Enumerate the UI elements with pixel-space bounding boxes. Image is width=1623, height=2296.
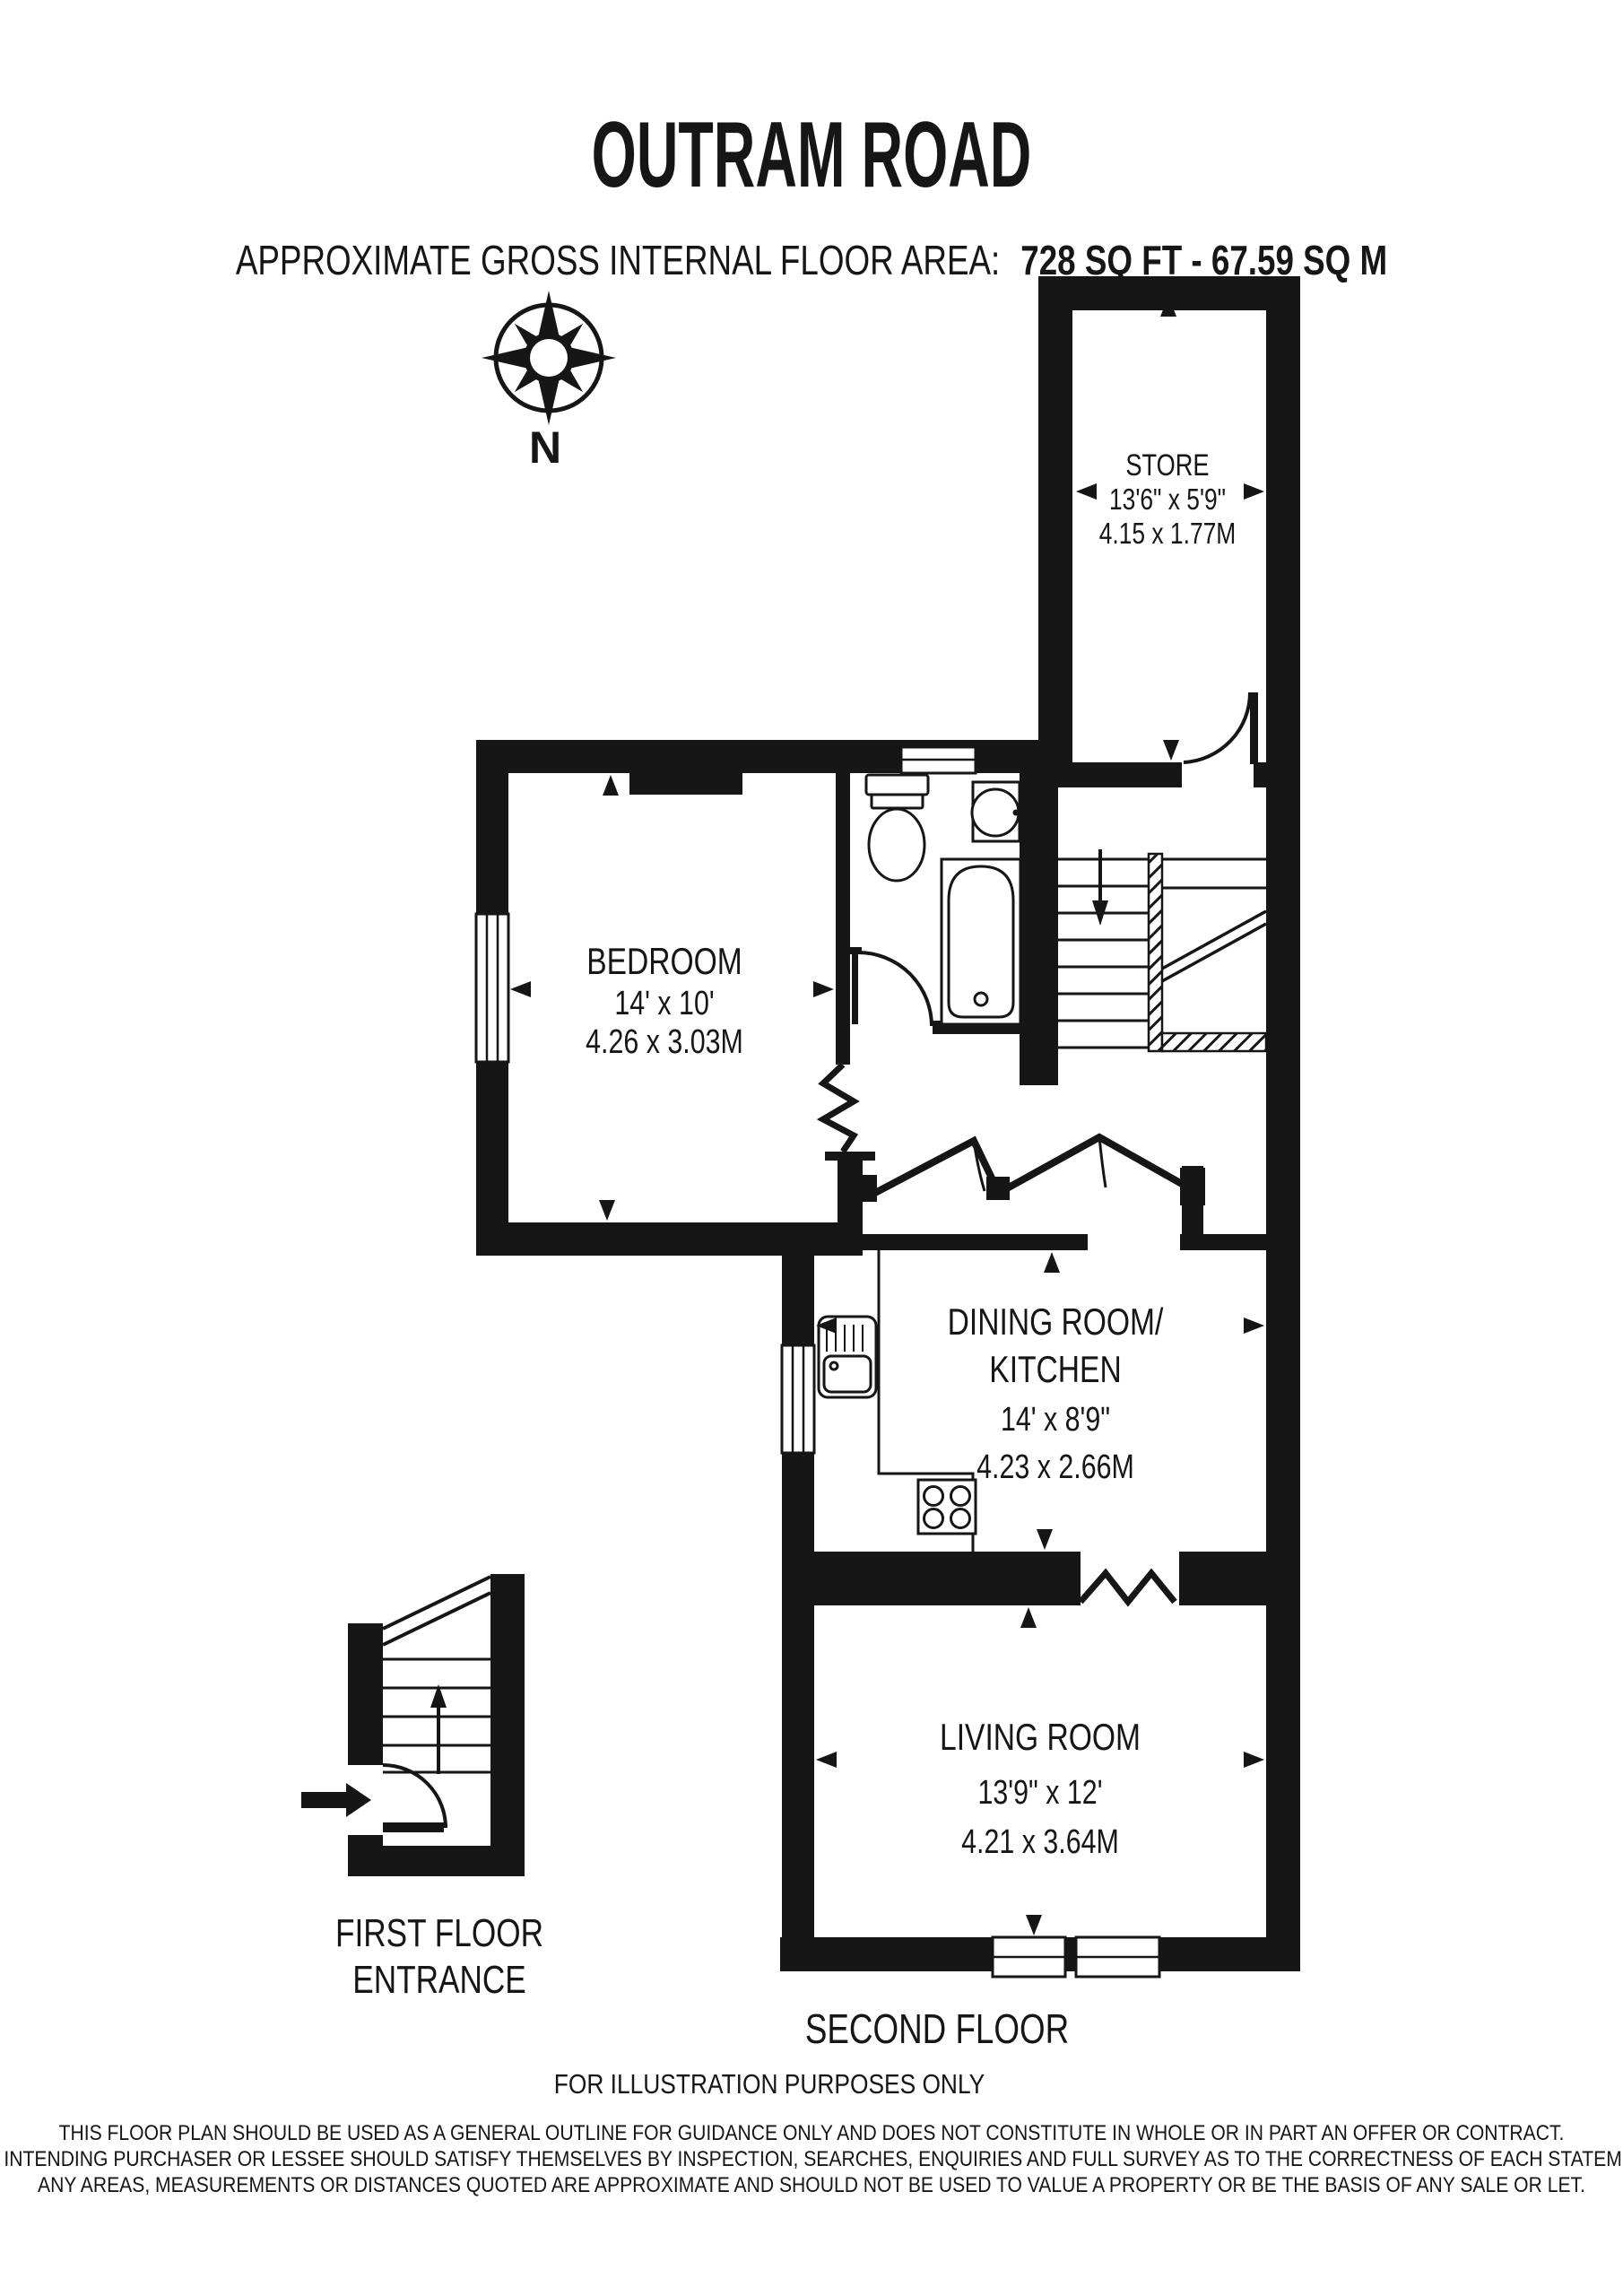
bedroom-opening-zigzag bbox=[823, 1065, 854, 1152]
bedroom-label: BEDROOM 14' x 10' 4.26 x 3.03M bbox=[586, 942, 743, 1061]
second-floor-label: SECOND FLOOR bbox=[805, 2005, 1069, 2052]
first-floor-label-line1: FIRST FLOOR bbox=[335, 1911, 543, 1955]
bathroom-right-wall bbox=[1020, 773, 1058, 1085]
stairs-up-arrow-icon bbox=[430, 1684, 447, 1774]
disclaimer-line3: ANY AREAS, MEASUREMENTS OR DISTANCES QUO… bbox=[38, 2173, 1585, 2197]
store-door bbox=[1184, 692, 1258, 764]
compass-north-label: N bbox=[529, 422, 561, 473]
dining-living-wall-left bbox=[782, 1552, 1081, 1605]
entrance-door bbox=[383, 1765, 446, 1832]
bedroom-imperial: 14' x 10' bbox=[614, 985, 714, 1022]
chimney-breast bbox=[629, 773, 742, 795]
store-left-wall bbox=[1038, 276, 1072, 787]
bedroom-metric: 4.26 x 3.03M bbox=[586, 1023, 743, 1061]
entry-arrow-icon bbox=[301, 1783, 371, 1817]
bedroom-window bbox=[476, 914, 508, 1062]
dining-imperial: 14' x 8'9" bbox=[1001, 1401, 1110, 1439]
dining-window bbox=[782, 1345, 814, 1453]
store-label: STORE 13'6" x 5'9" 4.15 x 1.77M bbox=[1099, 448, 1237, 551]
living-window-left bbox=[993, 1937, 1065, 1977]
subtitle-prefix: APPROXIMATE GROSS INTERNAL FLOOR AREA: bbox=[236, 237, 1000, 283]
entrance-left-wall-upper bbox=[348, 1623, 383, 1765]
dining-name-line1: DINING ROOM/ bbox=[948, 1302, 1164, 1344]
basin-icon bbox=[972, 782, 1020, 841]
kitchen-fixtures bbox=[819, 1250, 976, 1552]
floor-plan-svg: OUTRAM ROAD APPROXIMATE GROSS INTERNAL F… bbox=[0, 0, 1623, 2296]
disclaimer: THIS FLOOR PLAN SHOULD BE USED AS A GENE… bbox=[0, 2121, 1623, 2197]
stair-rail bbox=[1149, 854, 1162, 1051]
dining-name-line2: KITCHEN bbox=[989, 1350, 1121, 1391]
stair-landing-edge bbox=[1162, 1033, 1266, 1051]
compass-icon: N bbox=[482, 291, 616, 473]
dining-left-wall-lower bbox=[782, 1453, 814, 1971]
living-metric: 4.21 x 3.64M bbox=[961, 1823, 1119, 1861]
cupboard-bifold-doors bbox=[852, 1137, 1205, 1205]
bedroom-bathroom-wall bbox=[836, 773, 850, 1065]
entrance-right-wall bbox=[490, 1574, 525, 1876]
store-metric: 4.15 x 1.77M bbox=[1099, 517, 1237, 550]
store-imperial: 13'6" x 5'9" bbox=[1109, 483, 1226, 516]
living-window-right bbox=[1076, 1937, 1159, 1977]
disclaimer-line1: THIS FLOOR PLAN SHOULD BE USED AS A GENE… bbox=[59, 2121, 1565, 2145]
bathroom-window bbox=[901, 747, 976, 773]
dining-label: DINING ROOM/ KITCHEN 14' x 8'9" 4.23 x 2… bbox=[948, 1302, 1164, 1486]
stairs-icon bbox=[1058, 849, 1266, 1051]
dining-living-wall-right bbox=[1179, 1552, 1300, 1605]
store-bottom-stub bbox=[1254, 762, 1266, 787]
floor-plan-page: OUTRAM ROAD APPROXIMATE GROSS INTERNAL F… bbox=[0, 0, 1623, 2296]
hob-icon bbox=[918, 1480, 976, 1534]
page-title: OUTRAM ROAD bbox=[592, 103, 1032, 206]
main-top-wall bbox=[476, 740, 1069, 773]
bedroom-name: BEDROOM bbox=[586, 942, 742, 983]
disclaimer-line2: ANY INTENDING PURCHASER OR LESSEE SHOULD… bbox=[0, 2147, 1623, 2171]
bathtub-icon bbox=[942, 859, 1020, 1024]
living-imperial: 13'9" x 12' bbox=[977, 1774, 1102, 1812]
store-bottom-wall bbox=[1072, 762, 1182, 787]
living-opening-zigzag bbox=[1081, 1573, 1175, 1602]
right-outer-wall bbox=[1266, 276, 1300, 1971]
store-name: STORE bbox=[1125, 448, 1209, 483]
living-label: LIVING ROOM 13'9" x 12' 4.21 x 3.64M bbox=[940, 1718, 1141, 1861]
dining-metric: 4.23 x 2.66M bbox=[976, 1448, 1134, 1486]
first-floor-label-line2: ENTRANCE bbox=[352, 1958, 526, 2002]
title-block: OUTRAM ROAD APPROXIMATE GROSS INTERNAL F… bbox=[236, 103, 1387, 283]
toilet-icon bbox=[866, 775, 928, 881]
bathroom-door bbox=[848, 947, 932, 1026]
dining-left-wall-upper bbox=[782, 1250, 814, 1345]
living-dimension-arrows bbox=[816, 1607, 1264, 1935]
illustration-label: FOR ILLUSTRATION PURPOSES ONLY bbox=[554, 2069, 985, 2100]
left-outer-wall-upper bbox=[476, 740, 508, 914]
bathroom-fixtures bbox=[866, 775, 1020, 1024]
room-labels: STORE 13'6" x 5'9" 4.15 x 1.77M BEDROOM … bbox=[586, 448, 1236, 1861]
living-name: LIVING ROOM bbox=[940, 1718, 1141, 1759]
entrance-stairs-icon bbox=[301, 1577, 490, 1817]
lobby-stub-ticks bbox=[825, 1152, 875, 1161]
dining-top-wall bbox=[782, 1234, 1088, 1250]
